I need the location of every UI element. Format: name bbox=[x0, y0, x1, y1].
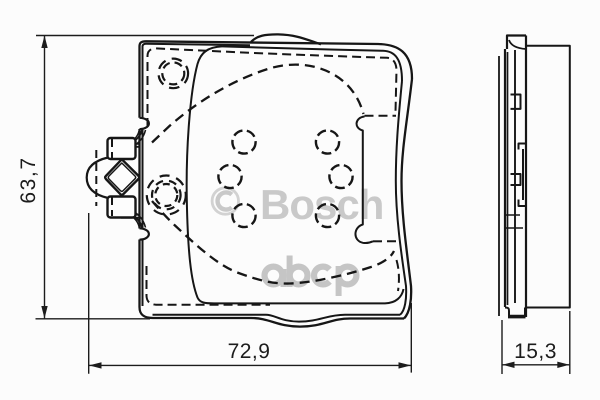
svg-text:63,7: 63,7 bbox=[17, 156, 40, 203]
svg-text:15,3: 15,3 bbox=[514, 340, 557, 363]
svg-text:72,9: 72,9 bbox=[228, 340, 271, 363]
